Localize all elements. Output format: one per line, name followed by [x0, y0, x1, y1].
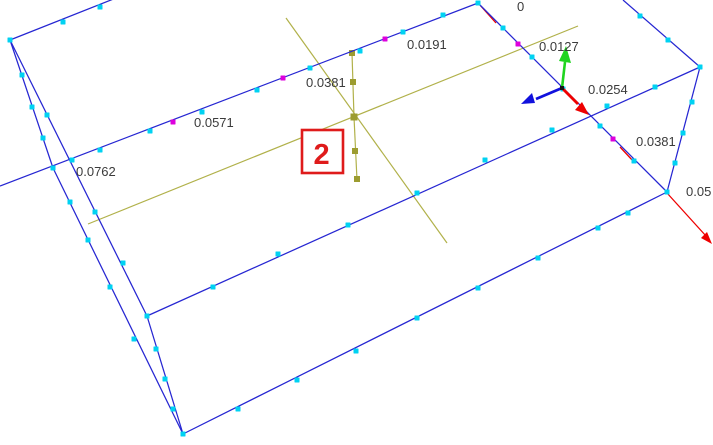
ruler-label: 0.0381 [636, 134, 676, 149]
keypoint-node[interactable] [483, 158, 488, 163]
keypoint-node[interactable] [690, 100, 695, 105]
model-edge[interactable] [667, 67, 700, 192]
keypoint-node[interactable] [132, 337, 137, 342]
keypoint-node[interactable] [598, 124, 603, 129]
keypoint-node[interactable] [415, 191, 420, 196]
x-axis-arrowhead-icon [701, 232, 712, 244]
ruler-label: 0.0191 [407, 37, 447, 52]
wireframe-scene: 00.01270.02540.03810.050.01910.03810.057… [0, 0, 713, 445]
workplane-axis-line [88, 26, 578, 224]
keypoint-node[interactable] [666, 38, 671, 43]
keypoint-node[interactable] [653, 85, 658, 90]
keypoint-node[interactable] [536, 256, 541, 261]
keypoint-node[interactable] [276, 252, 281, 257]
ruler-label: 0.0571 [194, 115, 234, 130]
keypoint-node[interactable] [68, 200, 73, 205]
triad-z-arrow [536, 88, 562, 99]
keypoint-node[interactable] [8, 38, 13, 43]
keypoint-node[interactable] [181, 432, 186, 437]
model-edge[interactable] [10, 40, 53, 168]
ruler-label: 0.0762 [76, 164, 116, 179]
model-edge[interactable] [183, 192, 667, 434]
mesh-nodes [8, 1, 703, 437]
midpoint-node[interactable] [516, 42, 521, 47]
keypoint-node[interactable] [70, 158, 75, 163]
keypoint-node[interactable] [665, 190, 670, 195]
keypoint-node[interactable] [673, 161, 678, 166]
ruler-label: 0.0254 [588, 82, 628, 97]
keypoint-node[interactable] [236, 407, 241, 412]
keypoint-node[interactable] [145, 314, 150, 319]
keypoint-node[interactable] [308, 66, 313, 71]
midpoint-node[interactable] [383, 37, 388, 42]
keypoint-node[interactable] [121, 261, 126, 266]
workplane-tick-marker [351, 114, 358, 121]
keypoint-node[interactable] [346, 223, 351, 228]
keypoint-node[interactable] [632, 159, 637, 164]
keypoint-node[interactable] [550, 128, 555, 133]
ruler-label: 0.05 [686, 184, 711, 199]
keypoint-node[interactable] [681, 131, 686, 136]
ruler-label: 0.0381 [306, 75, 346, 90]
keypoint-node[interactable] [295, 378, 300, 383]
keypoint-node[interactable] [41, 136, 46, 141]
model-edge[interactable] [147, 316, 183, 434]
workplane-tick-marker [350, 79, 356, 85]
keypoint-node[interactable] [476, 286, 481, 291]
keypoint-node[interactable] [596, 226, 601, 231]
area-badge-label: 2 [314, 139, 330, 171]
keypoint-node[interactable] [108, 285, 113, 290]
keypoint-node[interactable] [163, 377, 168, 382]
keypoint-node[interactable] [358, 49, 363, 54]
keypoint-node[interactable] [626, 211, 631, 216]
keypoint-node[interactable] [255, 88, 260, 93]
triad-y-arrow [562, 62, 565, 88]
keypoint-node[interactable] [530, 55, 535, 60]
keypoint-node[interactable] [98, 148, 103, 153]
triad-x-arrow [562, 88, 578, 104]
workplane-tick-marker [352, 148, 358, 154]
triad-z-arrowhead-icon [521, 93, 535, 104]
global-x-axis [479, 4, 712, 244]
midpoint-node[interactable] [611, 137, 616, 142]
keypoint-node[interactable] [51, 166, 56, 171]
keypoint-node[interactable] [476, 1, 481, 6]
midpoint-node[interactable] [281, 76, 286, 81]
keypoint-node[interactable] [441, 13, 446, 18]
keypoint-node[interactable] [30, 105, 35, 110]
keypoint-node[interactable] [638, 14, 643, 19]
keypoint-node[interactable] [86, 238, 91, 243]
model-edge[interactable] [623, 0, 700, 67]
keypoint-node[interactable] [61, 20, 66, 25]
keypoint-node[interactable] [211, 285, 216, 290]
ruler-label: 0 [517, 0, 524, 14]
keypoint-node[interactable] [171, 407, 176, 412]
keypoint-node[interactable] [93, 210, 98, 215]
keypoint-node[interactable] [401, 30, 406, 35]
model-edge[interactable] [53, 168, 183, 434]
keypoint-node[interactable] [605, 104, 610, 109]
cad-viewport[interactable]: 00.01270.02540.03810.050.01910.03810.057… [0, 0, 713, 445]
keypoint-node[interactable] [200, 110, 205, 115]
triad-origin-dot [560, 86, 564, 90]
keypoint-node[interactable] [45, 113, 50, 118]
model-edge[interactable] [147, 67, 700, 316]
global-x-axis-line [667, 193, 706, 236]
keypoint-node[interactable] [98, 5, 103, 10]
keypoint-node[interactable] [154, 347, 159, 352]
keypoint-node[interactable] [501, 26, 506, 31]
keypoint-node[interactable] [148, 129, 153, 134]
midpoint-node[interactable] [171, 120, 176, 125]
area-badge[interactable]: 2 [302, 130, 343, 173]
workplane-tick-marker [354, 176, 360, 182]
keypoint-node[interactable] [354, 349, 359, 354]
keypoint-node[interactable] [20, 73, 25, 78]
keypoint-node[interactable] [415, 316, 420, 321]
keypoint-node[interactable] [698, 65, 703, 70]
ruler-label: 0.0127 [539, 39, 579, 54]
